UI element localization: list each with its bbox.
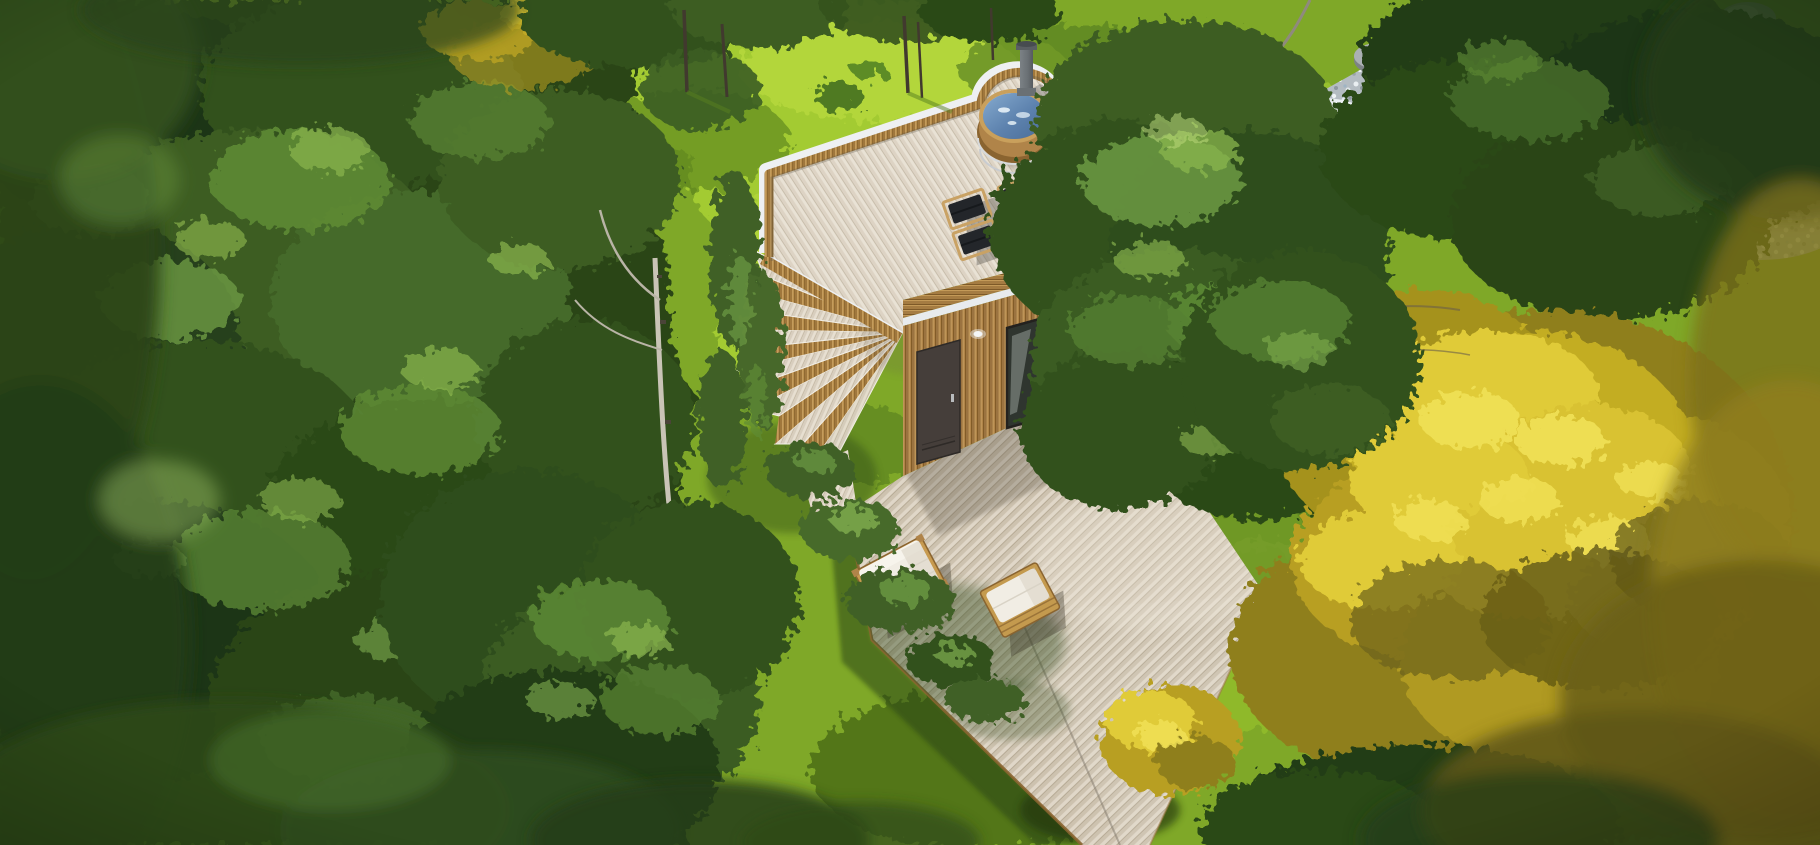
forest-cabin-rendering: Aerial view of a modern timber cabin wit… [0, 0, 1820, 845]
vignette [0, 0, 1820, 845]
rendered-image: Aerial view of a modern timber cabin wit… [0, 0, 1820, 845]
